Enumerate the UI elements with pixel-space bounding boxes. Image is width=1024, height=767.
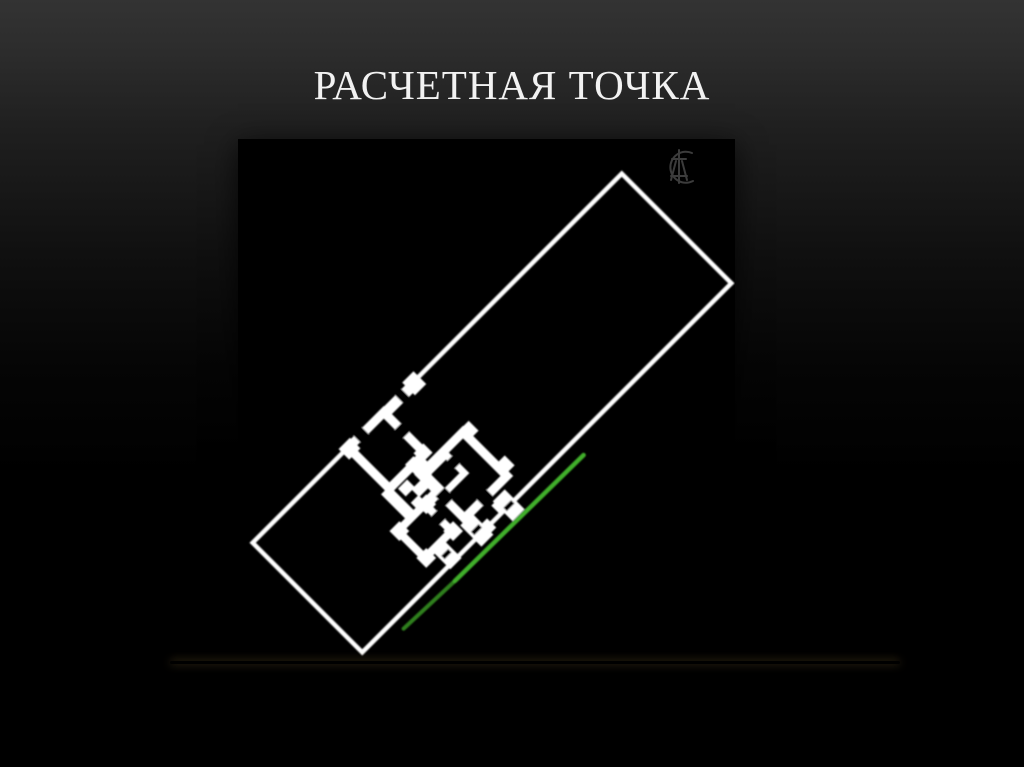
site-boundary-outline <box>253 174 732 653</box>
rotated-plan-group <box>247 168 735 659</box>
ct-monogram-icon <box>670 150 693 183</box>
floor-plan <box>322 368 542 588</box>
site-plan-figure <box>238 139 735 659</box>
divider-line <box>170 661 900 664</box>
page-title: РАСЧЕТНАЯ ТОЧКА <box>0 63 1024 108</box>
site-plan-svg <box>238 139 735 659</box>
floor-plan-room <box>348 412 424 488</box>
presentation-slide: РАСЧЕТНАЯ ТОЧКА <box>0 0 1024 767</box>
